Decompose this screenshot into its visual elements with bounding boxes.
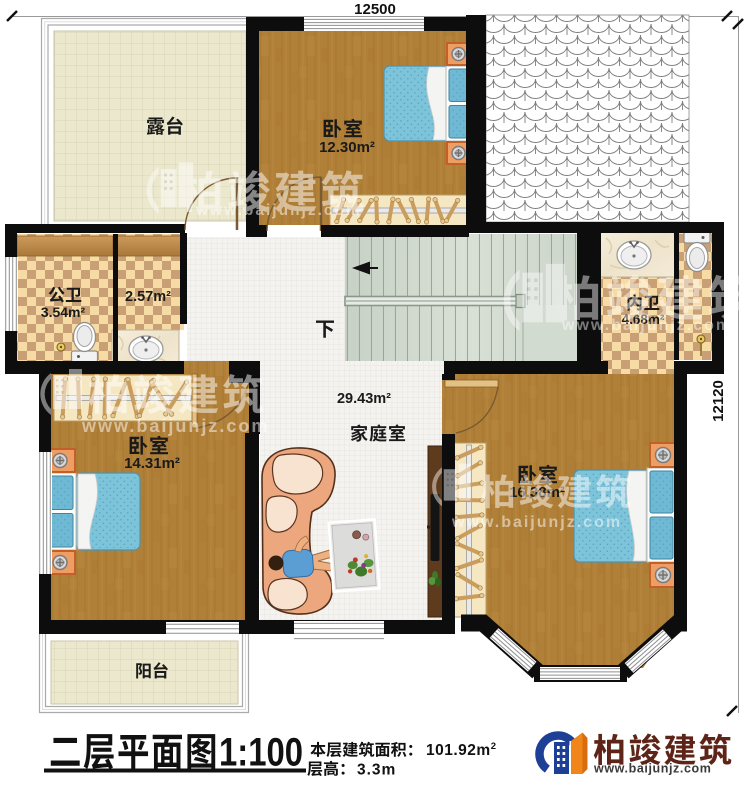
svg-text:14.31m²: 14.31m² — [124, 455, 180, 472]
svg-text:1:100: 1:100 — [219, 731, 303, 775]
svg-text:2.57m²: 2.57m² — [125, 289, 171, 305]
svg-text:101.92m2: 101.92m2 — [426, 741, 497, 759]
svg-text:12120: 12120 — [710, 380, 727, 422]
svg-text:www.baijunjz.com: www.baijunjz.com — [81, 416, 269, 436]
svg-text:3.54m²: 3.54m² — [41, 304, 86, 320]
svg-text:www.baijunjz.com: www.baijunjz.com — [451, 514, 622, 531]
svg-text:12500: 12500 — [354, 1, 396, 18]
svg-text:www.baijunjz.com: www.baijunjz.com — [195, 202, 362, 219]
svg-text:www.baijunjz.com: www.baijunjz.com — [593, 762, 711, 776]
svg-text:29.43m²: 29.43m² — [337, 391, 391, 407]
svg-text:3.3m: 3.3m — [357, 762, 396, 779]
svg-text:12.30m²: 12.30m² — [319, 139, 375, 156]
svg-text:www.baijunjz.com: www.baijunjz.com — [561, 317, 732, 334]
